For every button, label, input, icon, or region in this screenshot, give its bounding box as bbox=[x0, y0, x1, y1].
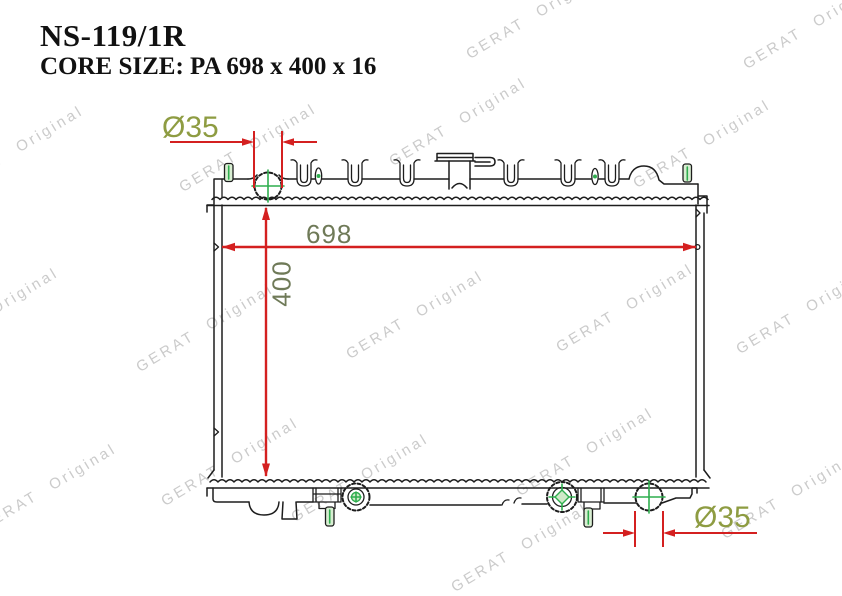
core-width-label: 698 bbox=[306, 219, 352, 250]
overflow-pipe bbox=[475, 158, 495, 167]
part-number: NS-119/1R bbox=[40, 18, 186, 54]
lower-bracket bbox=[313, 488, 341, 509]
filler-neck bbox=[435, 154, 495, 190]
outlet-diameter-label: Ø35 bbox=[694, 501, 751, 535]
tank-bump bbox=[249, 502, 279, 515]
dimension-lines bbox=[170, 131, 757, 547]
inlet-diameter-label: Ø35 bbox=[162, 111, 219, 145]
radiator-technical-drawing: Ø35 698 400 Ø35 bbox=[0, 0, 842, 595]
mounting-brackets bbox=[291, 160, 625, 186]
lower-bracket bbox=[578, 488, 604, 509]
core bbox=[207, 197, 710, 488]
core-height-label: 400 bbox=[267, 254, 298, 314]
catalog-page: GERAT OriginalGERAT OriginalGERAT Origin… bbox=[0, 0, 842, 595]
center-marks bbox=[229, 166, 688, 524]
core-size-label: CORE SIZE: PA 698 x 400 x 16 bbox=[40, 53, 376, 81]
